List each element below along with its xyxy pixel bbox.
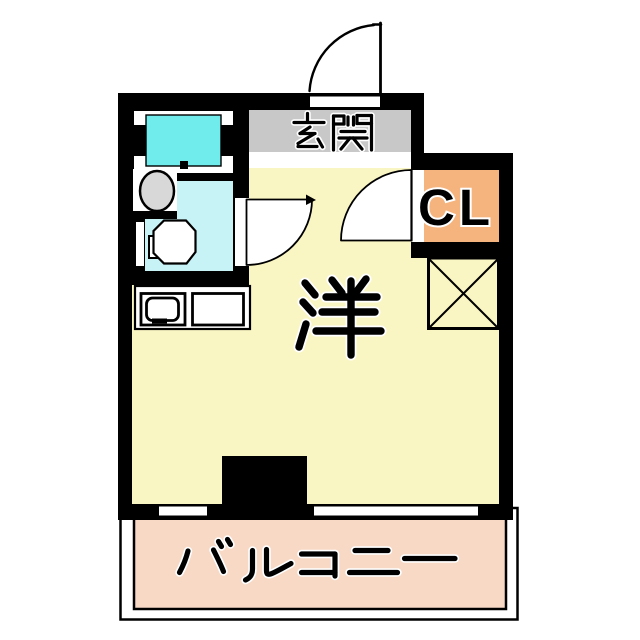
svg-text:CL: CL [418, 179, 494, 236]
